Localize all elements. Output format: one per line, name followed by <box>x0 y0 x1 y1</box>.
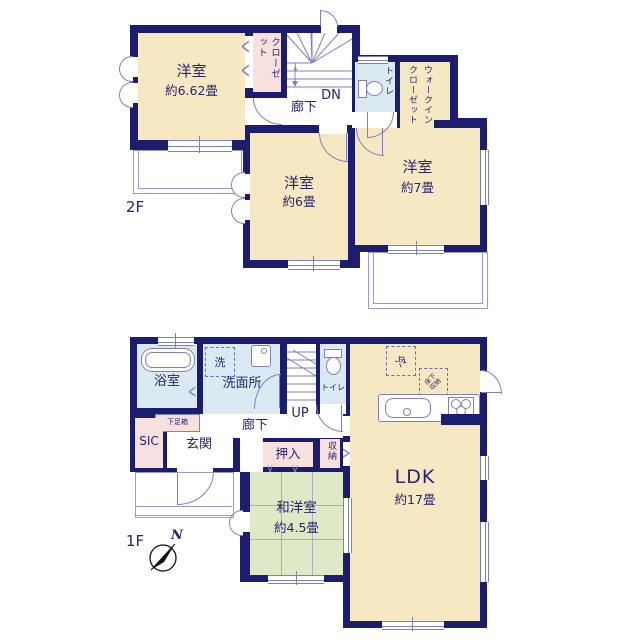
casement-window-icon <box>231 172 245 198</box>
porch-outline <box>135 472 234 518</box>
window-ldk-right-b <box>480 522 489 582</box>
casement-window-icon <box>231 198 245 224</box>
room-7-name: 洋室 <box>355 158 480 177</box>
toilet-2f-label: トイレ <box>382 66 394 110</box>
fridge-box: 冷 <box>386 346 416 376</box>
wall-kitchen-stub <box>441 414 487 425</box>
sliding-window-2f-662 <box>168 140 232 152</box>
window-tick <box>175 333 176 348</box>
compass-icon <box>147 540 183 576</box>
wall-2f-wic-stub <box>434 120 458 128</box>
window-ldk-right-a <box>480 456 489 480</box>
room-6-size: 約6畳 <box>250 194 348 210</box>
closet-label: クローゼット <box>253 37 281 89</box>
sink-drain-icon <box>403 408 411 416</box>
stairs-up-label: UP <box>284 406 316 422</box>
window-1f-top <box>158 337 194 346</box>
floor-plan: < < ↓ 洋室 約6.62畳 クローゼット DN 廊下 トイレ ウォークインク… <box>0 0 640 640</box>
entrance-label: 玄関 <box>168 437 230 453</box>
window-tick <box>296 571 297 585</box>
window-2f-7-right <box>480 150 489 205</box>
room-6-name: 洋室 <box>250 174 348 193</box>
window-ldk-bottom <box>382 621 444 630</box>
washer-box: 洗 <box>205 347 235 377</box>
room-1f-entrance-top <box>200 414 233 432</box>
hallway-2f-label: 廊下 <box>279 100 329 116</box>
toilet-bowl-icon <box>326 357 341 375</box>
porch-step-line <box>135 506 232 507</box>
oshiire-label: 押入 <box>263 446 313 462</box>
balcony-2f-left-inner <box>138 150 242 189</box>
door-leaf <box>481 392 501 393</box>
basin-faucet-icon <box>261 348 267 354</box>
casement-window-icon <box>119 56 133 82</box>
fridge-label: 冷 <box>391 351 410 370</box>
door-arc-ldk-backdoor <box>481 370 502 394</box>
hallway-1f-label: 廊下 <box>231 418 279 434</box>
room-7-size: 約7畳 <box>355 180 480 196</box>
storage-label: 収納 <box>323 441 337 467</box>
door-leaf <box>346 133 347 161</box>
ldk-size: 約17畳 <box>350 492 480 508</box>
washitsu-name: 和洋室 <box>250 500 343 517</box>
room-1f-hall-southwest <box>240 438 263 472</box>
underfloor-storage-box: 床下収納 <box>419 368 448 396</box>
compass-north-label: N <box>169 528 185 544</box>
futon-mark-icon: ∨ <box>291 463 299 474</box>
window-tick <box>313 256 314 271</box>
ldk-name: LDK <box>350 466 480 490</box>
bifold-door-icon: < <box>241 35 250 57</box>
window-tick <box>412 617 413 631</box>
shoebox-label: 下足箱 <box>155 418 200 427</box>
door-leaf <box>382 128 383 155</box>
tatami-line <box>250 539 343 540</box>
underfloor-storage-label: 床下収納 <box>423 371 444 392</box>
futon-mark-icon: ∨ <box>266 463 274 474</box>
sliding-window-2f-6 <box>288 260 340 270</box>
room-662-size: 約6.62畳 <box>138 83 245 99</box>
floor-1f-label: 1F <box>120 532 150 551</box>
stairs-1f-graphic <box>287 344 316 414</box>
sic-label: SIC <box>135 434 163 449</box>
washroom-label: 洗面所 <box>200 376 284 392</box>
washitsu-size: 約4.5畳 <box>250 520 343 536</box>
opening-entrance-door <box>177 462 213 472</box>
door-leaf <box>320 10 321 26</box>
floor-2f-label: 2F <box>120 198 150 217</box>
door-leaf <box>341 405 342 431</box>
wic-label: ウォークインクローゼット <box>404 65 434 127</box>
casement-window-icon <box>119 82 133 108</box>
opening-hall-ldk <box>343 416 350 436</box>
bath-label: 浴室 <box>137 374 197 390</box>
washer-label: 洗 <box>215 354 226 370</box>
window-tick <box>199 136 200 153</box>
opening-washitsu-window <box>243 512 250 532</box>
storage-door-icon: > <box>342 445 351 462</box>
opening-2f-room662-door <box>245 98 253 125</box>
door-arc-2f-stairtop <box>320 10 338 27</box>
porch-step-line <box>135 515 232 516</box>
toilet-1f-label: トイレ <box>318 383 348 393</box>
room-662-name: 洋室 <box>138 62 245 81</box>
balcony-2f-right-inner <box>373 252 483 304</box>
window-2f-toilet <box>358 56 388 64</box>
bathtub-inner-icon <box>145 352 191 368</box>
window-tick <box>416 241 417 255</box>
